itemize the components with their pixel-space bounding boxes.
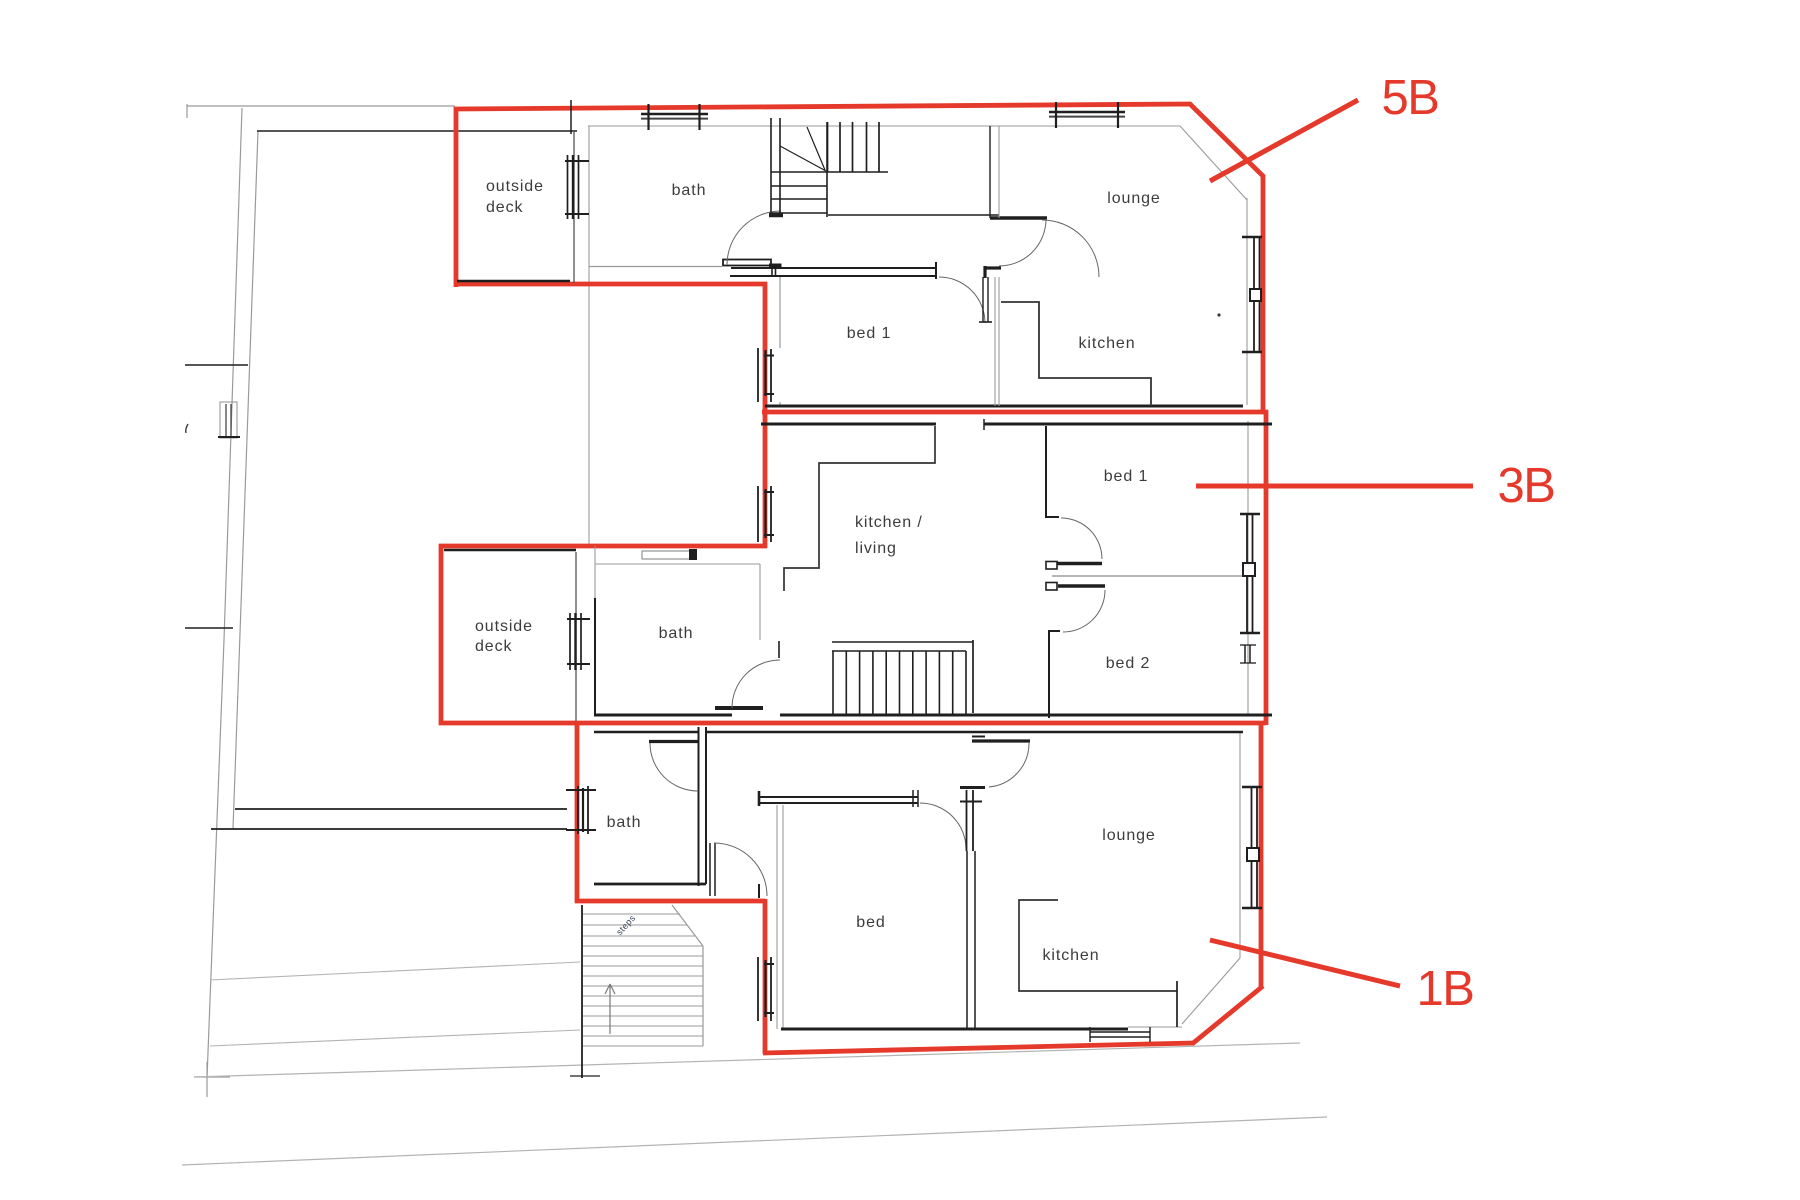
- svg-text:deck: deck: [475, 638, 512, 655]
- svg-text:outside: outside: [486, 178, 544, 195]
- svg-text:bed 2: bed 2: [1106, 655, 1151, 672]
- svg-text:bed 1: bed 1: [1104, 468, 1149, 485]
- svg-text:lounge: lounge: [1102, 827, 1155, 844]
- svg-text:kitchen /: kitchen /: [855, 514, 923, 531]
- svg-text:deck: deck: [486, 199, 523, 216]
- svg-text:1B: 1B: [1417, 962, 1474, 1016]
- svg-text:bath: bath: [672, 182, 707, 199]
- svg-text:bed 1: bed 1: [847, 325, 892, 342]
- svg-text:lounge: lounge: [1107, 190, 1160, 207]
- svg-text:3B: 3B: [1498, 459, 1555, 513]
- svg-text:bed: bed: [856, 914, 885, 931]
- svg-text:living: living: [855, 540, 897, 557]
- svg-text:kitchen: kitchen: [1079, 335, 1136, 352]
- svg-text:bath: bath: [607, 814, 642, 831]
- svg-text:bath: bath: [659, 625, 694, 642]
- svg-text:outside: outside: [475, 618, 533, 635]
- svg-text:5B: 5B: [1382, 71, 1439, 125]
- svg-text:kitchen: kitchen: [1043, 947, 1100, 964]
